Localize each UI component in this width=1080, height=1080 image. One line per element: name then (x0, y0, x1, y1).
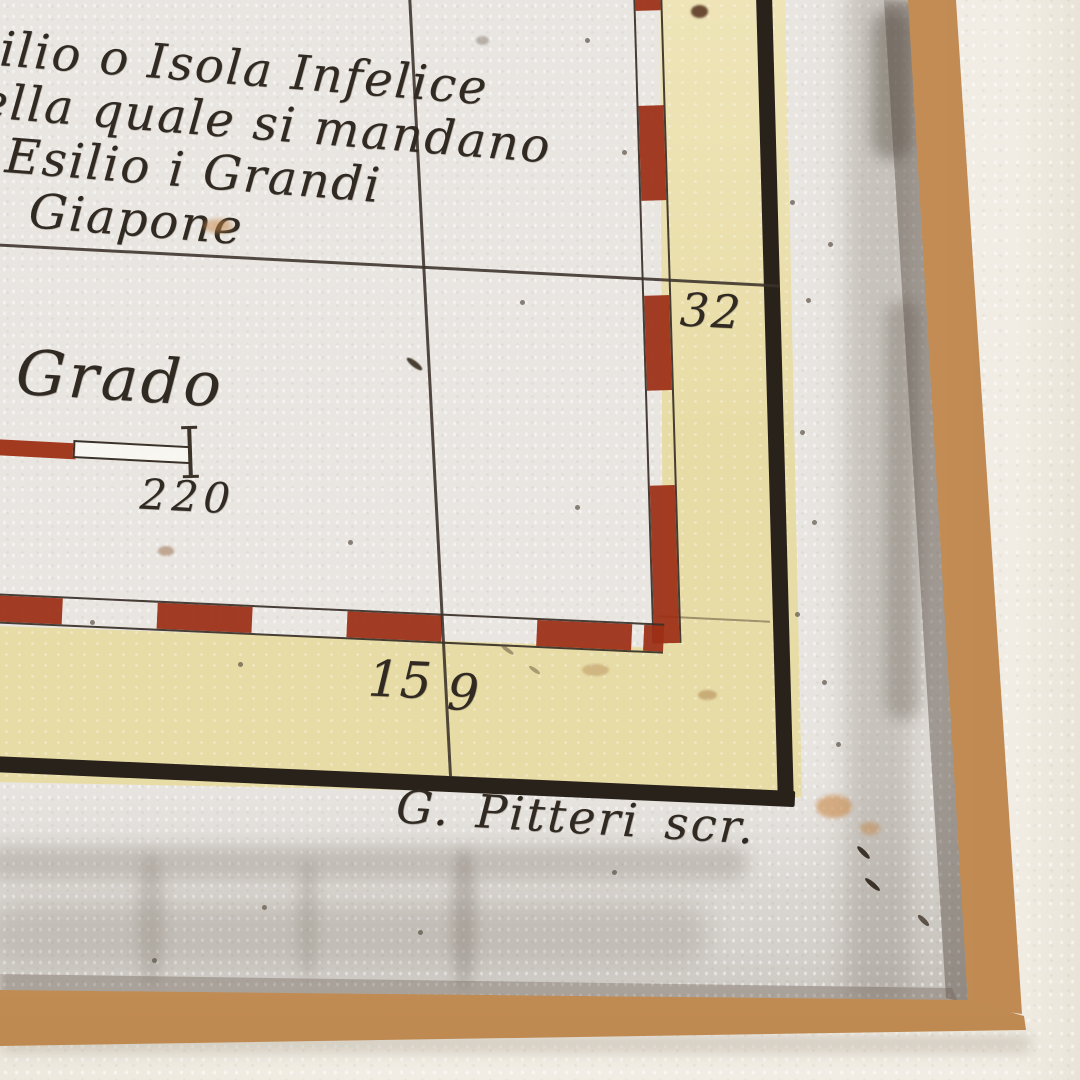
scale-number-label: 220 (139, 470, 237, 524)
paper-smudge (0, 846, 748, 880)
paper-speck (622, 150, 627, 155)
latitude-label: 32 (679, 282, 744, 339)
paper-speck (812, 520, 817, 525)
foxing-stain (698, 690, 717, 700)
paper-speck (348, 540, 353, 545)
paper-smudge (0, 902, 708, 964)
ink-blot (691, 5, 708, 18)
framed-antique-map-photo: ilio o Isola Infelice ella quale si mand… (0, 0, 1080, 1080)
foxing-stain (860, 822, 880, 835)
foxing-stain (158, 546, 174, 556)
paper-speck (822, 680, 827, 685)
paper-speck (828, 242, 833, 247)
map-note-text: ilio o Isola Infelice ella quale si mand… (0, 22, 558, 279)
longitude-label-right: 9 (446, 663, 480, 722)
paper-smudge (298, 858, 318, 980)
scale-unit-label: Grado (14, 336, 226, 422)
paper-smudge (452, 848, 476, 990)
longitude-label: 159 (367, 650, 481, 713)
paper-speck (238, 662, 243, 667)
foxing-stain (203, 219, 233, 233)
paper-speck (575, 505, 580, 510)
foxing-stain (816, 795, 852, 818)
paper-speck (585, 38, 590, 43)
paper-smudge (138, 852, 164, 986)
paper-speck (795, 612, 800, 617)
paper-speck (790, 200, 795, 205)
paper-speck (520, 300, 525, 305)
paper-speck (152, 958, 157, 963)
paper-speck (806, 298, 811, 303)
paper-speck (418, 930, 423, 935)
paper-speck (800, 430, 805, 435)
longitude-label-left: 15 (367, 650, 433, 711)
paper-speck (90, 620, 95, 625)
foxing-stain (476, 36, 489, 45)
paper-speck (836, 742, 841, 747)
paper-speck (262, 905, 267, 910)
foxing-stain (582, 664, 609, 676)
paper-speck (612, 870, 617, 875)
